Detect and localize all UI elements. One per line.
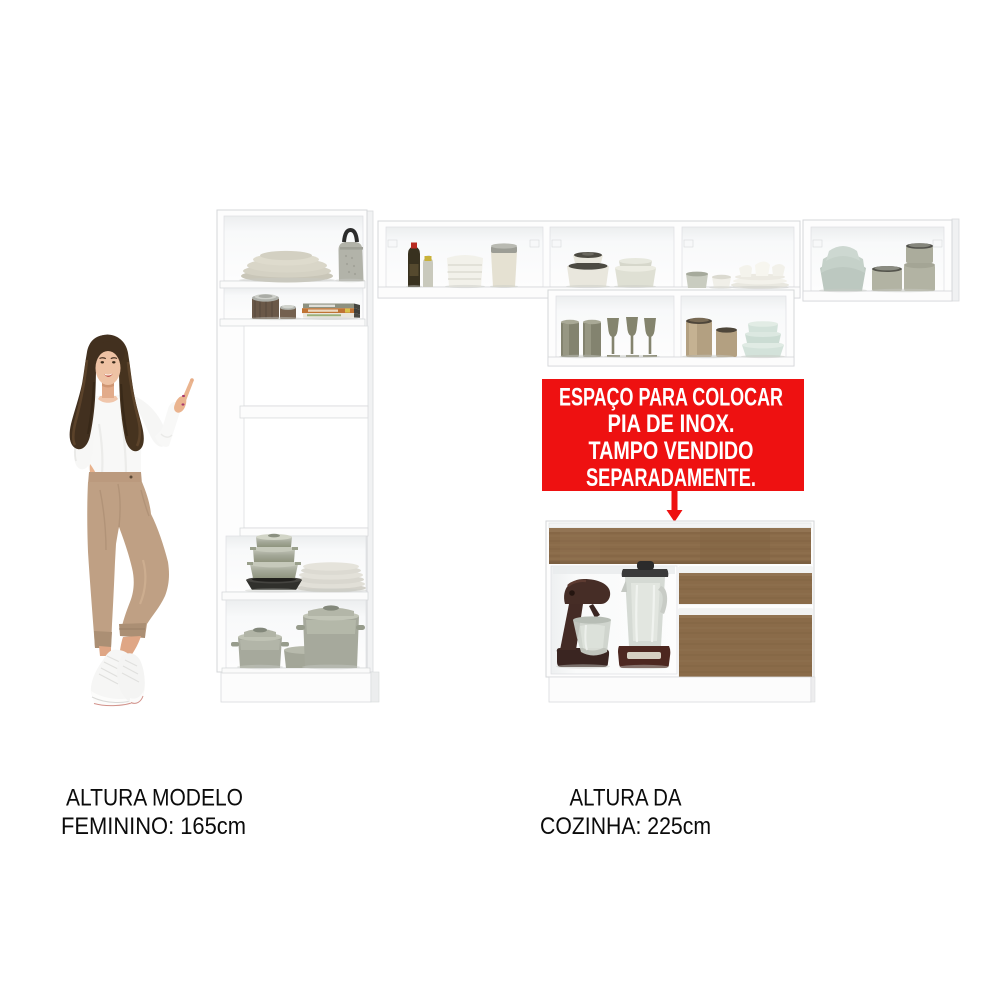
svg-text:ALTURA DA: ALTURA DA	[570, 785, 682, 812]
svg-text:FEMININO: 165cm: FEMININO: 165cm	[61, 813, 246, 840]
svg-text:COZINHA: 225cm: COZINHA: 225cm	[540, 813, 711, 840]
svg-text:PIA DE INOX.: PIA DE INOX.	[608, 410, 735, 438]
svg-text:SEPARADAMENTE.: SEPARADAMENTE.	[586, 464, 756, 492]
svg-text:ALTURA MODELO: ALTURA MODELO	[66, 785, 243, 812]
svg-text:TAMPO VENDIDO: TAMPO VENDIDO	[589, 437, 754, 465]
svg-text:ESPAÇO PARA COLOCAR: ESPAÇO PARA COLOCAR	[559, 384, 783, 412]
